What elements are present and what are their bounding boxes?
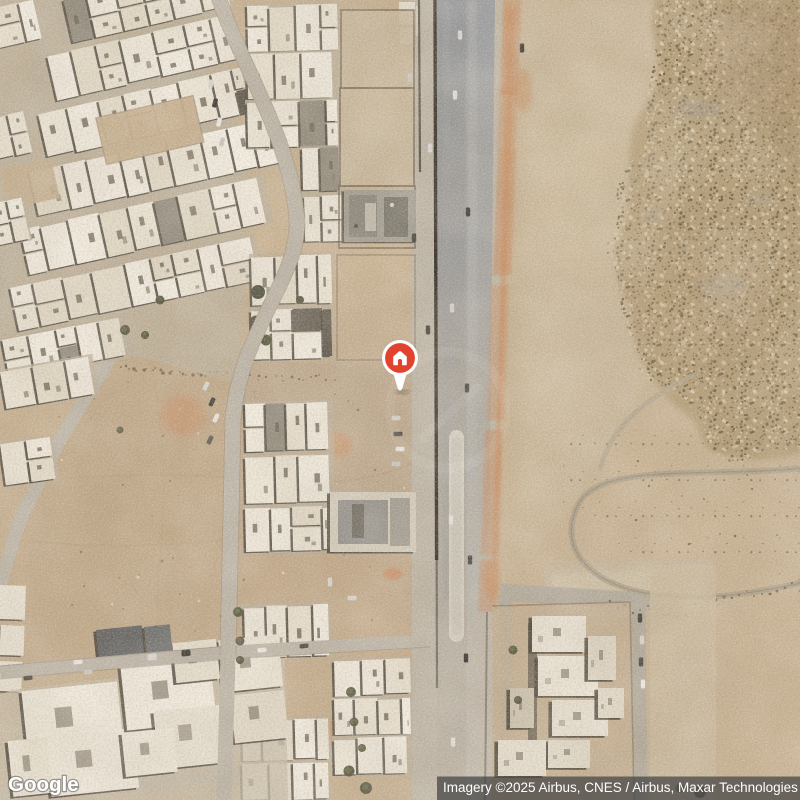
svg-text:Google: Google — [8, 773, 79, 796]
svg-text:Imagery ©2025 Airbus, CNES / A: Imagery ©2025 Airbus, CNES / Airbus, Max… — [443, 780, 798, 795]
